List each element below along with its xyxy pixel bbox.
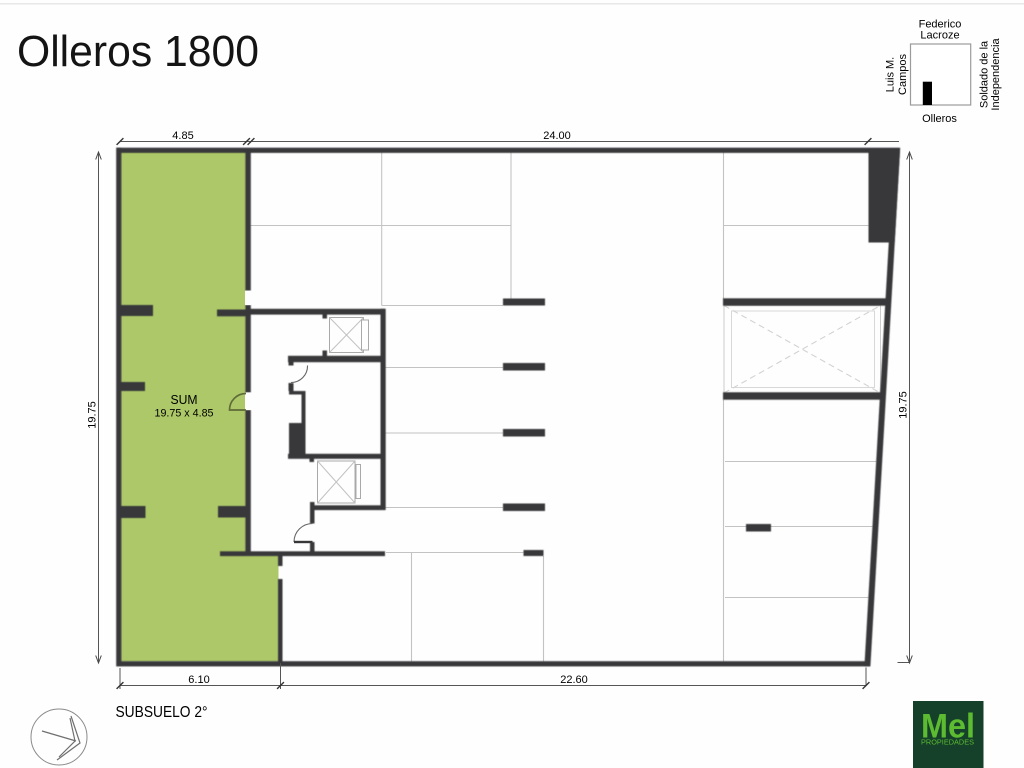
svg-text:Soldado de la: Soldado de la <box>978 40 990 108</box>
svg-text:6.10: 6.10 <box>188 674 209 686</box>
svg-text:Olleros 1800: Olleros 1800 <box>17 27 259 76</box>
svg-text:4.85: 4.85 <box>172 130 193 142</box>
svg-text:Independencia: Independencia <box>990 38 1002 111</box>
svg-text:Luis M.: Luis M. <box>885 57 897 92</box>
svg-text:19.75: 19.75 <box>87 401 99 429</box>
svg-text:22.60: 22.60 <box>560 674 588 686</box>
svg-text:SUM: SUM <box>171 392 198 407</box>
svg-text:Olleros: Olleros <box>922 113 957 125</box>
svg-text:24.00: 24.00 <box>543 130 571 142</box>
svg-text:Lacroze: Lacroze <box>920 29 959 41</box>
svg-text:19.75: 19.75 <box>898 391 910 419</box>
svg-text:PROPIEDADES: PROPIEDADES <box>921 740 974 747</box>
svg-text:SUBSUELO 2°: SUBSUELO 2° <box>116 704 208 721</box>
svg-text:Campos: Campos <box>897 54 909 95</box>
svg-text:19.75 x 4.85: 19.75 x 4.85 <box>155 408 214 420</box>
